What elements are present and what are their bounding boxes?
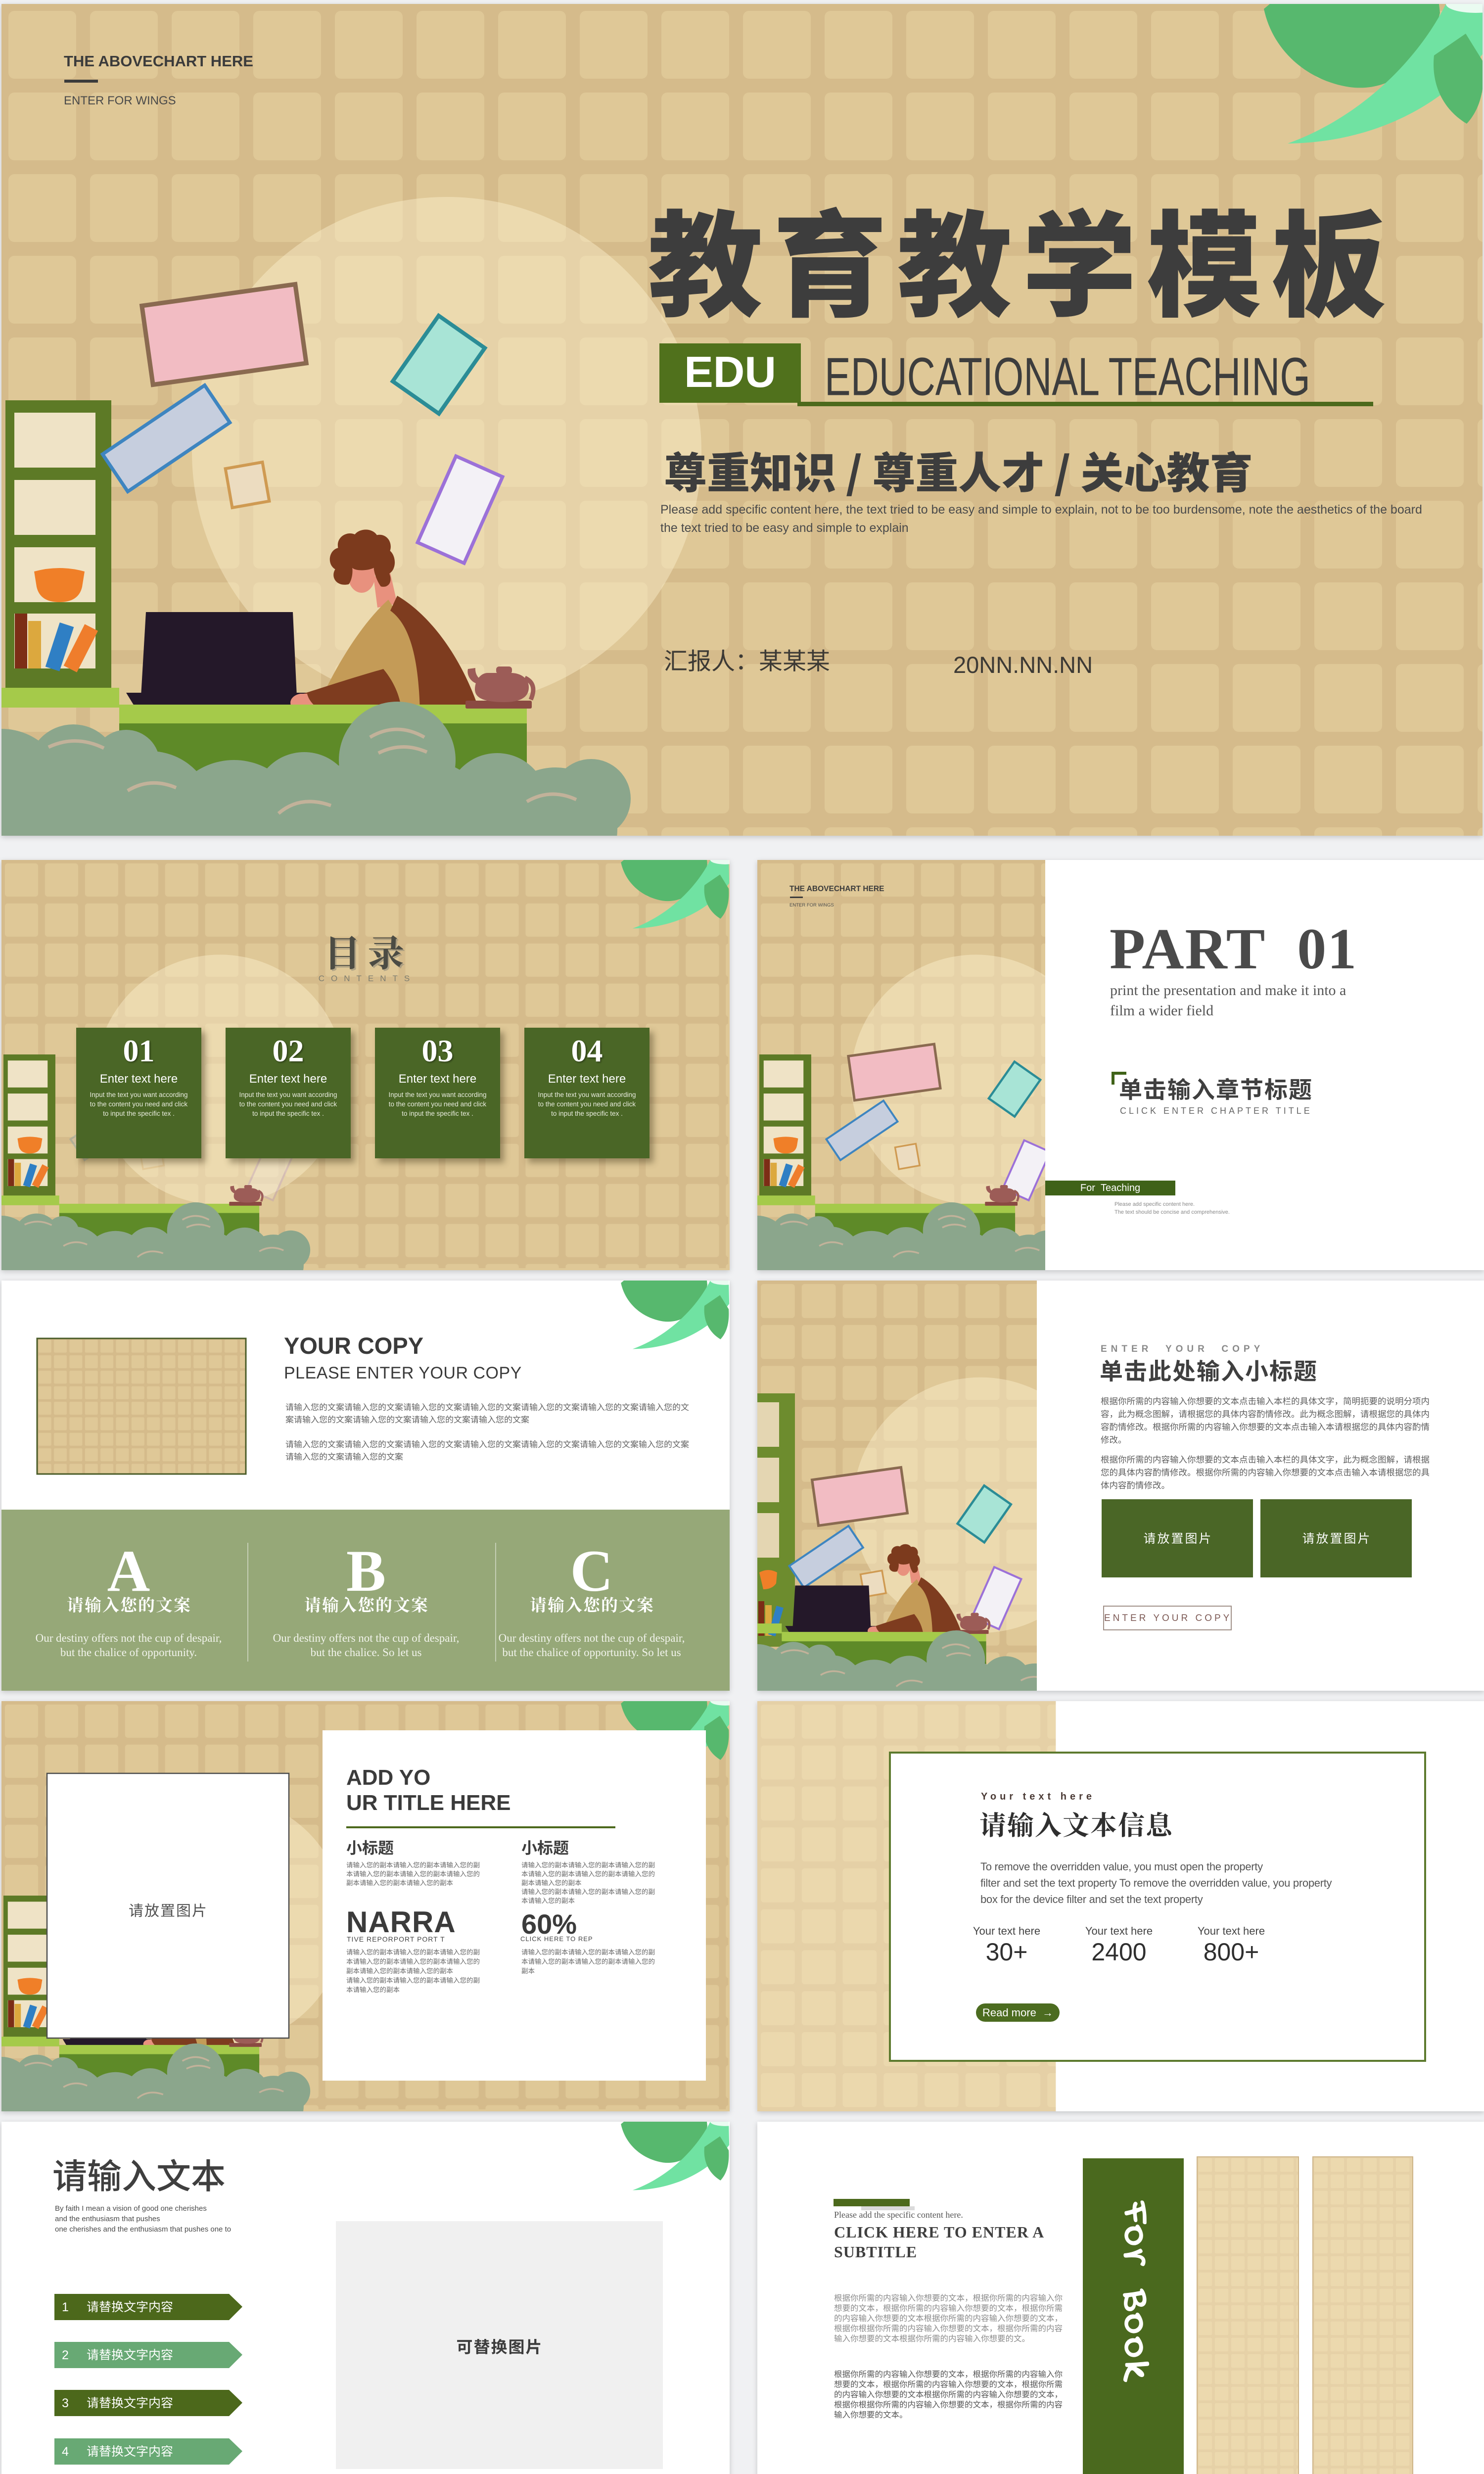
svg-text:4: 4: [62, 2445, 69, 2459]
svg-text:3: 3: [62, 2396, 69, 2410]
svg-text:1: 1: [62, 2300, 69, 2314]
svg-text:2: 2: [62, 2348, 69, 2362]
